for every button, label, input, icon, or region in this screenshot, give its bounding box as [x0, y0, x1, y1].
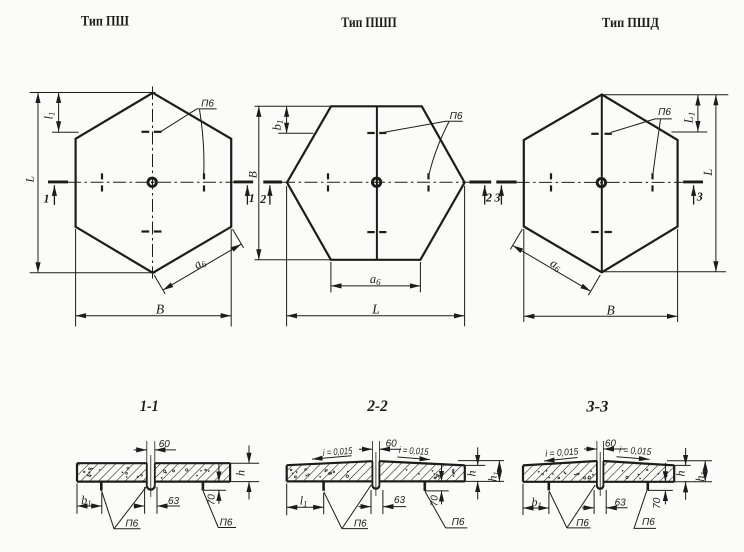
- svg-text:L: L: [24, 176, 36, 183]
- svg-text:70: 70: [429, 495, 440, 507]
- svg-text:63: 63: [168, 496, 180, 507]
- svg-text:П6: П6: [450, 111, 463, 122]
- svg-text:В: В: [247, 171, 259, 178]
- svg-text:В: В: [606, 302, 614, 317]
- svg-text:Тип ПШП: Тип ПШП: [341, 15, 397, 31]
- svg-text:63: 63: [394, 495, 406, 506]
- svg-text:i = 0,015: i = 0,015: [323, 446, 354, 459]
- svg-text:3: 3: [494, 191, 501, 205]
- svg-text:П6: П6: [576, 518, 589, 529]
- svg-text:63: 63: [615, 498, 627, 509]
- svg-text:2: 2: [485, 191, 492, 205]
- svg-text:3-3: 3-3: [585, 399, 608, 416]
- svg-text:60: 60: [159, 439, 171, 450]
- svg-text:60: 60: [386, 439, 398, 450]
- svg-text:h: h: [234, 470, 248, 476]
- svg-text:L: L: [701, 169, 715, 177]
- svg-text:60: 60: [605, 438, 617, 449]
- svg-text:П6: П6: [658, 107, 671, 118]
- svg-text:П6: П6: [354, 519, 367, 530]
- svg-text:П6: П6: [452, 517, 465, 528]
- svg-text:2: 2: [259, 192, 266, 206]
- svg-text:i = 0,015: i = 0,015: [619, 445, 652, 458]
- svg-text:2-2: 2-2: [366, 398, 387, 415]
- svg-text:Тип ПШ: Тип ПШ: [81, 14, 129, 30]
- svg-text:h: h: [465, 471, 479, 477]
- svg-text:i = 0,015: i = 0,015: [545, 446, 579, 459]
- svg-text:Тип ПШД: Тип ПШД: [602, 16, 659, 31]
- svg-text:П6: П6: [201, 98, 214, 109]
- svg-text:h: h: [673, 471, 687, 477]
- svg-text:70: 70: [652, 497, 663, 509]
- svg-text:1: 1: [44, 191, 50, 205]
- svg-text:П6: П6: [642, 517, 655, 528]
- svg-text:П6: П6: [220, 517, 233, 528]
- svg-text:1: 1: [249, 191, 255, 205]
- svg-text:П6: П6: [125, 518, 138, 529]
- svg-text:L: L: [371, 301, 380, 316]
- svg-text:i = 0,015: i = 0,015: [399, 445, 430, 458]
- svg-text:3: 3: [696, 190, 703, 204]
- svg-text:В: В: [156, 302, 164, 317]
- svg-text:1-1: 1-1: [140, 398, 159, 415]
